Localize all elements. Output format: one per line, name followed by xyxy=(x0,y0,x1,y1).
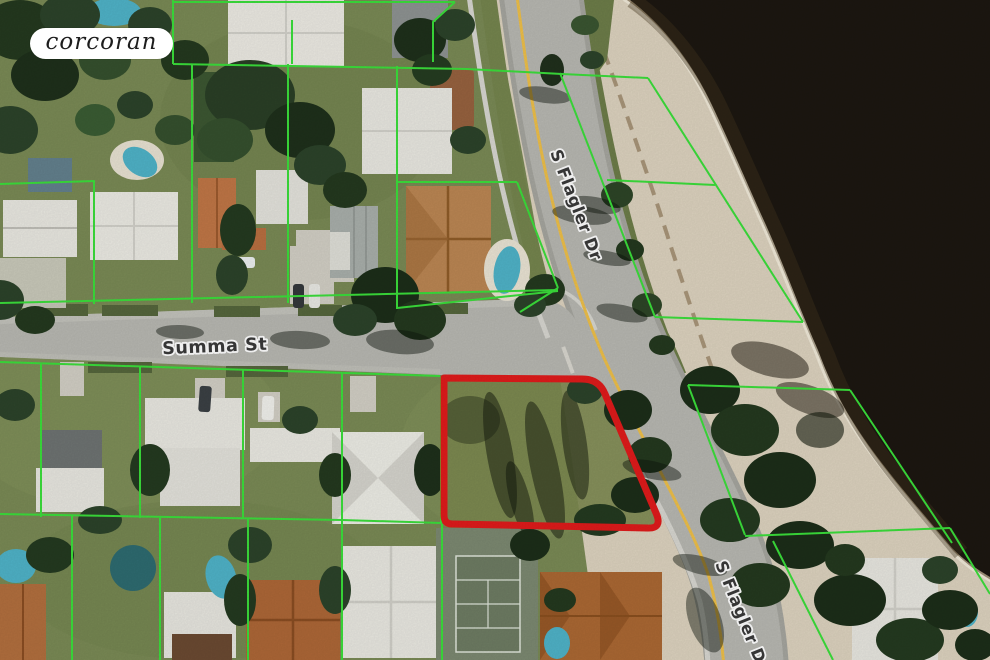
aerial-map: Summa St S Flagler Dr S Flagler Dr corco… xyxy=(0,0,990,660)
corcoran-logo: corcoran xyxy=(30,28,173,59)
photo-grain-overlay xyxy=(0,0,990,660)
aerial-map-canvas: Summa St S Flagler Dr S Flagler Dr xyxy=(0,0,990,660)
corcoran-logo-text: corcoran xyxy=(46,31,158,54)
